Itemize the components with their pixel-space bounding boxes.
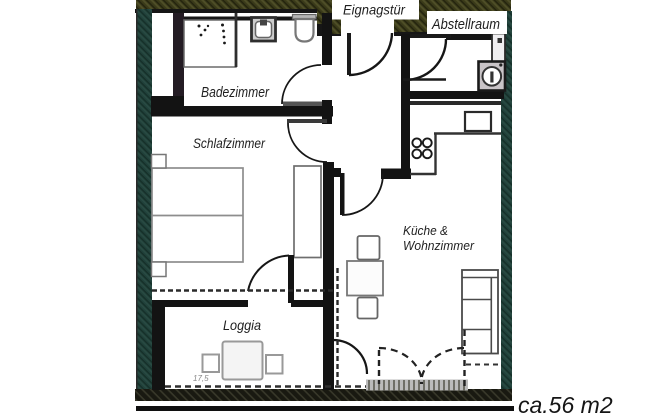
svg-text:Badezimmer: Badezimmer [201,85,270,101]
svg-text:Eignagstür: Eignagstür [343,2,406,18]
svg-text:17,5: 17,5 [193,374,209,383]
svg-text:Schlafzimmer: Schlafzimmer [193,135,266,151]
svg-text:Wohnzimmer: Wohnzimmer [403,238,475,253]
svg-text:Loggia: Loggia [223,317,261,333]
svg-text:Abstellraum: Abstellraum [431,17,500,33]
svg-text:ca.56 m2: ca.56 m2 [518,392,613,418]
svg-text:Küche &: Küche & [403,223,448,238]
